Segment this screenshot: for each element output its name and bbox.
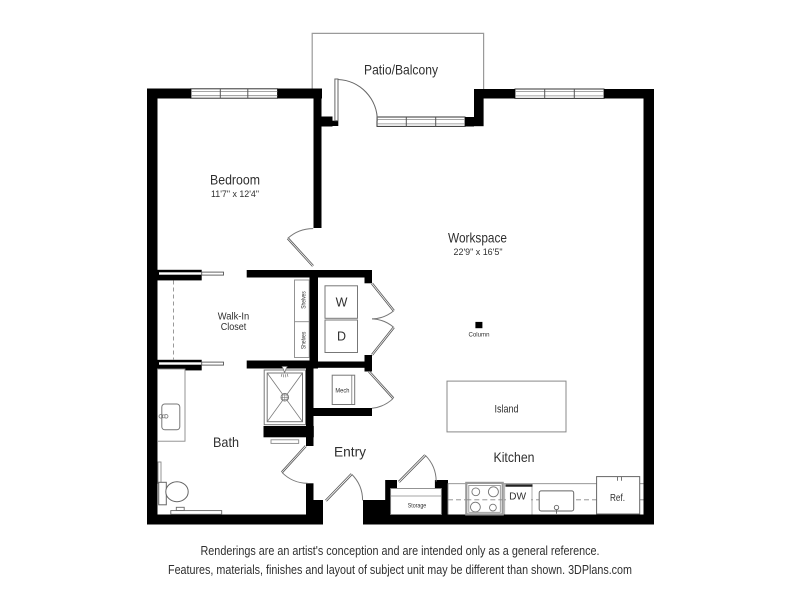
svg-text:Bedroom: Bedroom — [210, 172, 260, 188]
svg-text:Mech: Mech — [335, 388, 349, 395]
svg-text:Kitchen: Kitchen — [494, 449, 535, 465]
svg-text:W: W — [336, 296, 348, 310]
svg-text:Renderings are an artist's con: Renderings are an artist's conception an… — [201, 543, 600, 558]
svg-text:Shelves: Shelves — [301, 331, 308, 349]
svg-text:Storage: Storage — [408, 502, 427, 509]
svg-text:DW: DW — [509, 492, 527, 503]
svg-text:Entry: Entry — [334, 444, 366, 460]
svg-text:Walk-In: Walk-In — [218, 312, 250, 323]
svg-text:Closet: Closet — [221, 322, 247, 333]
svg-text:Island: Island — [495, 404, 519, 416]
svg-text:Ref.: Ref. — [610, 493, 625, 504]
svg-text:Bath: Bath — [213, 434, 239, 450]
svg-text:Shelves: Shelves — [301, 291, 308, 309]
svg-text:Patio/Balcony: Patio/Balcony — [364, 62, 438, 78]
svg-text:D: D — [337, 330, 346, 344]
svg-text:Workspace: Workspace — [448, 230, 507, 246]
svg-text:Column: Column — [469, 332, 490, 339]
svg-text:Features, materials, finishes: Features, materials, finishes and layout… — [168, 562, 632, 577]
svg-text:22'9" x 16'5": 22'9" x 16'5" — [454, 247, 503, 257]
svg-text:11'7" x 12'4": 11'7" x 12'4" — [211, 189, 259, 199]
